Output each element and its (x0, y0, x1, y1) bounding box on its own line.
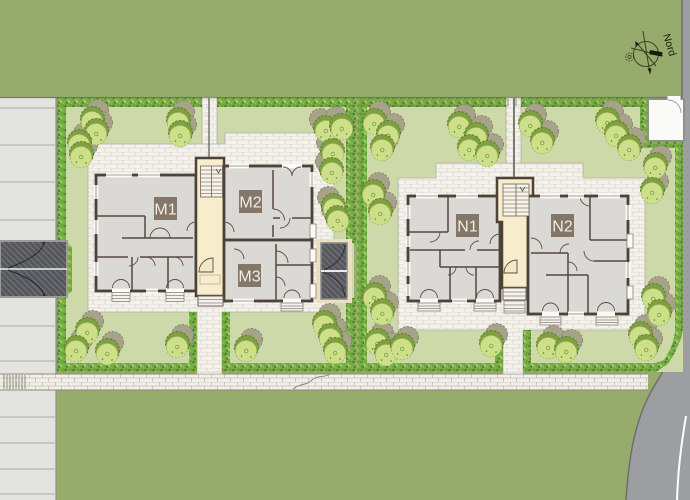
svg-text:N2: N2 (552, 219, 573, 236)
svg-text:M3: M3 (238, 269, 260, 286)
svg-text:M1: M1 (154, 202, 176, 219)
svg-text:M2: M2 (239, 195, 261, 212)
svg-text:N1: N1 (457, 219, 478, 236)
